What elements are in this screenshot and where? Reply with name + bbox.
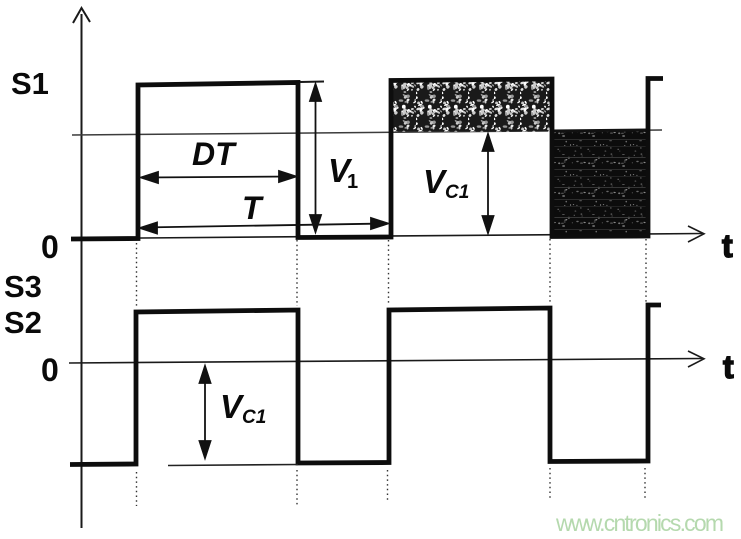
svg-text:www.cntronics.com: www.cntronics.com xyxy=(555,510,724,536)
svg-text:C1: C1 xyxy=(242,407,266,428)
svg-text:C1: C1 xyxy=(445,182,469,203)
svg-text:0: 0 xyxy=(41,352,59,388)
svg-text:S3: S3 xyxy=(4,269,42,304)
svg-text:1: 1 xyxy=(347,171,358,193)
svg-text:T: T xyxy=(242,190,264,226)
svg-text:t: t xyxy=(722,228,733,264)
svg-text:t: t xyxy=(723,349,734,385)
svg-text:0: 0 xyxy=(41,229,59,265)
svg-text:DT: DT xyxy=(192,136,237,172)
svg-text:S2: S2 xyxy=(4,305,42,340)
svg-text:S1: S1 xyxy=(11,66,49,101)
